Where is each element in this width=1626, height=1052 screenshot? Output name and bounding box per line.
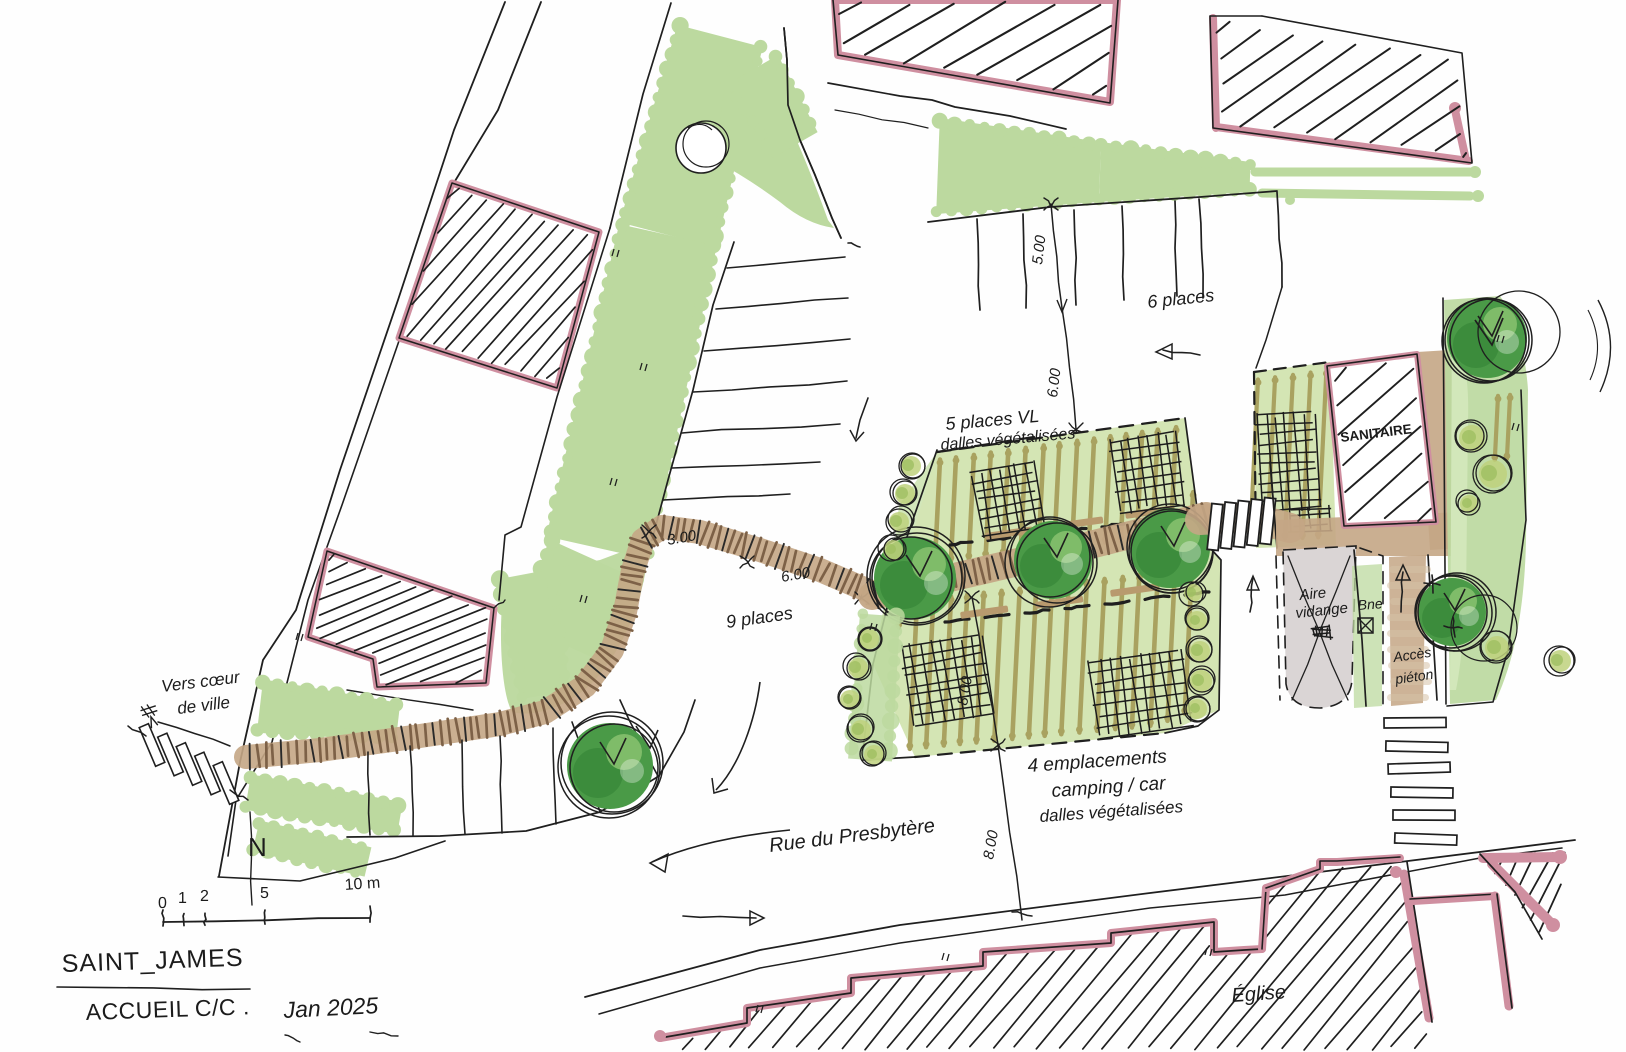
svg-text:6.00: 6.00 [1044, 367, 1065, 399]
svg-text:Aire: Aire [1298, 584, 1327, 604]
svg-text:1: 1 [178, 890, 187, 907]
svg-text:0: 0 [158, 895, 167, 912]
svg-text:Bne: Bne [1357, 595, 1383, 613]
svg-text:2: 2 [200, 888, 209, 905]
svg-text:5.00: 5.00 [1029, 234, 1050, 266]
svg-text:Jan 2025: Jan 2025 [282, 992, 379, 1023]
svg-text:10 m: 10 m [344, 875, 381, 894]
svg-text:Église: Église [1231, 980, 1287, 1007]
svg-text:5: 5 [260, 885, 269, 902]
